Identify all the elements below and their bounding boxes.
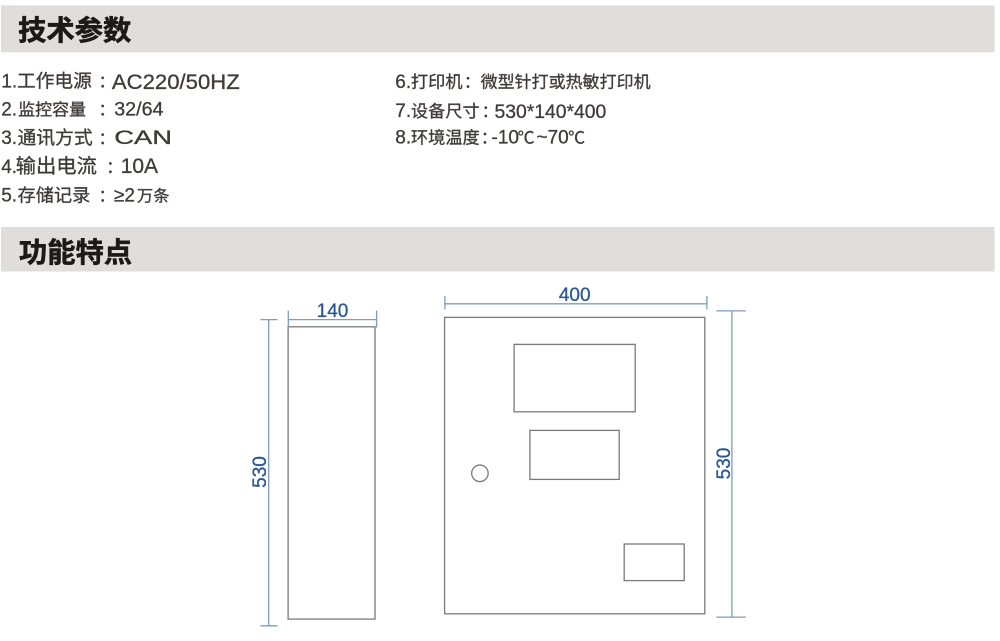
svg-text:3.: 3. xyxy=(1,128,17,149)
svg-text:8.: 8. xyxy=(395,128,411,149)
svg-text:530*140*400: 530*140*400 xyxy=(495,102,607,123)
svg-text:≥2: ≥2 xyxy=(114,185,135,206)
svg-text:2.: 2. xyxy=(1,100,17,121)
svg-text:10A: 10A xyxy=(121,155,158,178)
svg-text:530: 530 xyxy=(714,448,735,480)
svg-text:5.: 5. xyxy=(1,186,17,207)
svg-text:6.: 6. xyxy=(395,72,411,93)
svg-text:7.: 7. xyxy=(395,101,411,122)
svg-text:4.: 4. xyxy=(1,157,17,178)
svg-text:140: 140 xyxy=(317,301,349,322)
svg-text:AC220/50HZ: AC220/50HZ xyxy=(112,70,240,94)
svg-text:400: 400 xyxy=(559,285,591,306)
svg-text:1.: 1. xyxy=(1,71,17,92)
svg-text:CAN: CAN xyxy=(114,127,172,148)
svg-text:530: 530 xyxy=(250,456,271,488)
svg-text:~70: ~70 xyxy=(536,128,568,149)
svg-text:-10: -10 xyxy=(492,128,519,149)
svg-text:32/64: 32/64 xyxy=(114,99,164,121)
